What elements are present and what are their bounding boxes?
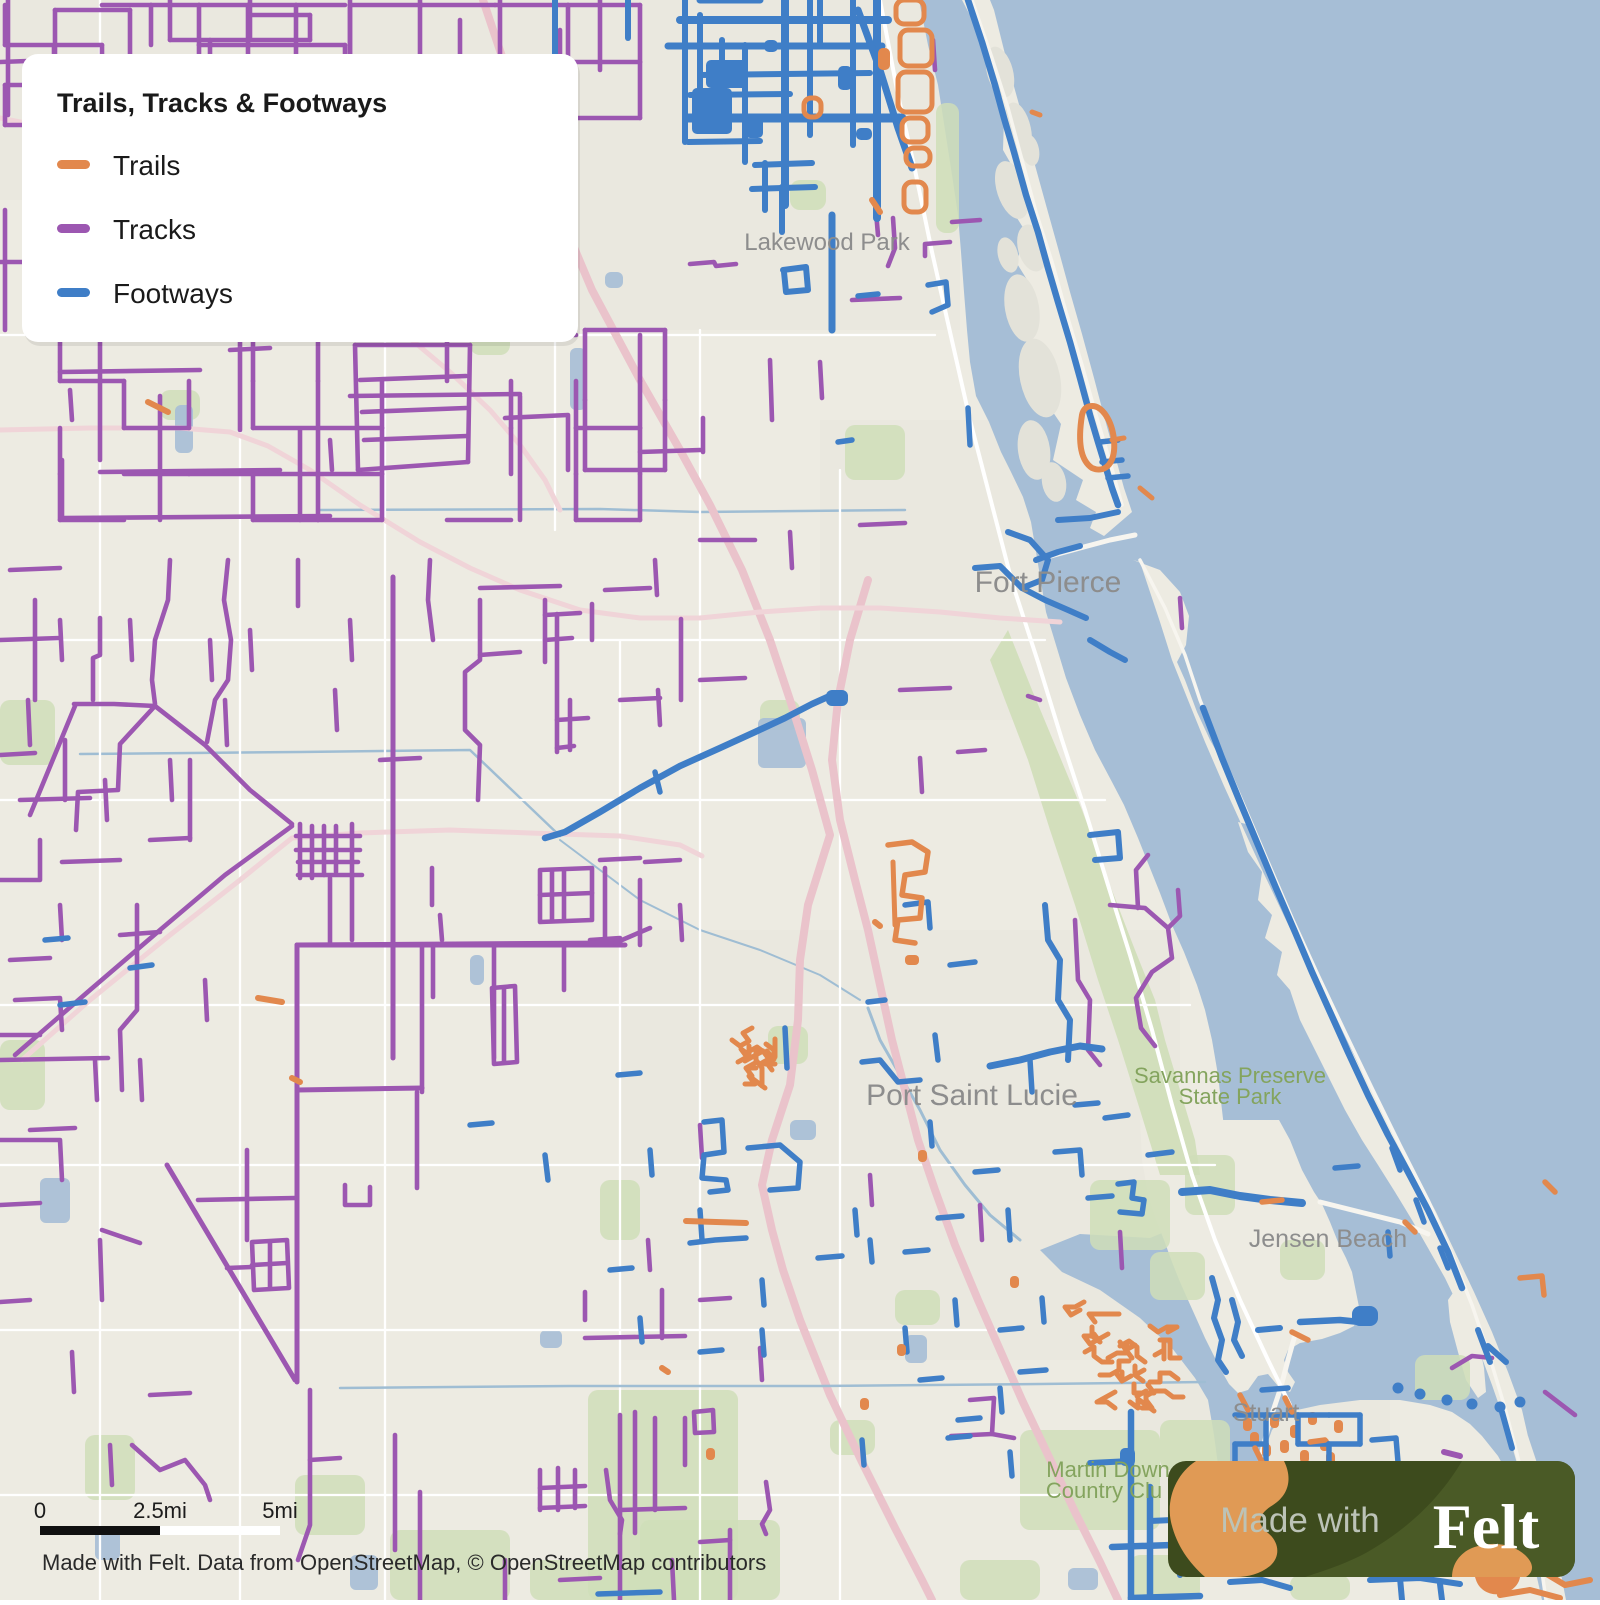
svg-text:Country Clu: Country Clu [1046, 1478, 1162, 1503]
svg-text:Footways: Footways [113, 278, 233, 309]
svg-text:Tracks: Tracks [113, 214, 196, 245]
svg-text:5mi: 5mi [262, 1498, 297, 1523]
svg-text:Fort Pierce: Fort Pierce [975, 566, 1122, 599]
svg-text:0: 0 [34, 1498, 46, 1523]
svg-text:Made with: Made with [1220, 1501, 1380, 1540]
svg-text:2.5mi: 2.5mi [133, 1498, 187, 1523]
svg-text:Felt: Felt [1433, 1491, 1540, 1562]
svg-text:Trails, Tracks & Footways: Trails, Tracks & Footways [57, 88, 387, 118]
svg-text:Lakewood Park: Lakewood Park [744, 229, 910, 256]
svg-text:Stuart: Stuart [1233, 1399, 1300, 1427]
svg-text:State Park: State Park [1179, 1084, 1283, 1109]
svg-text:Jensen Beach: Jensen Beach [1249, 1225, 1407, 1253]
svg-text:Made with Felt. Data from Open: Made with Felt. Data from OpenStreetMap,… [42, 1550, 766, 1575]
svg-text:Trails: Trails [113, 150, 180, 181]
svg-text:Port Saint Lucie: Port Saint Lucie [866, 1079, 1078, 1112]
